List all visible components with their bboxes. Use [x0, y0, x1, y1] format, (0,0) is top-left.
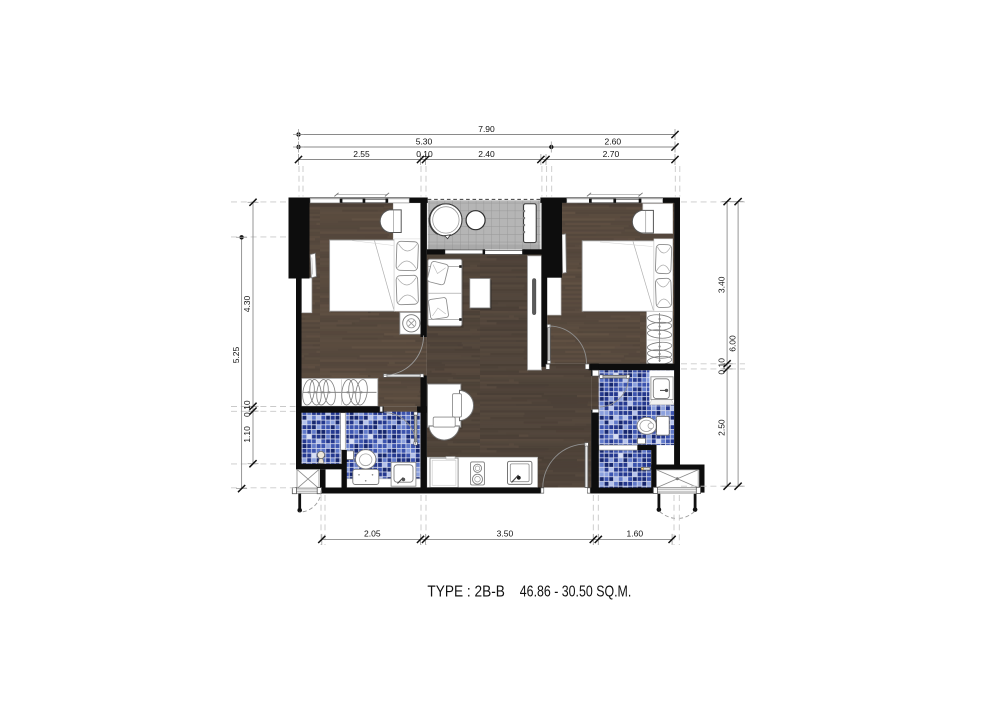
svg-text:0.10: 0.10 [416, 149, 433, 159]
svg-text:0.10: 0.10 [242, 400, 252, 417]
svg-text:1.10: 1.10 [242, 426, 252, 443]
svg-text:5.25: 5.25 [231, 346, 241, 363]
svg-text:2.55: 2.55 [353, 149, 370, 159]
svg-text:46.86 - 30.50 SQ.M.: 46.86 - 30.50 SQ.M. [520, 584, 632, 601]
svg-text:2.40: 2.40 [478, 149, 495, 159]
svg-text:3.40: 3.40 [716, 276, 726, 293]
svg-text:4.30: 4.30 [242, 295, 252, 312]
svg-text:TYPE : 2B-B: TYPE : 2B-B [427, 584, 505, 601]
svg-text:2.05: 2.05 [364, 529, 381, 539]
svg-text:2.50: 2.50 [716, 419, 726, 436]
svg-text:2.60: 2.60 [605, 136, 622, 146]
svg-text:3.50: 3.50 [497, 529, 514, 539]
svg-text:7.90: 7.90 [478, 124, 495, 134]
svg-text:2.70: 2.70 [603, 149, 620, 159]
svg-text:5.30: 5.30 [416, 136, 433, 146]
svg-text:0.10: 0.10 [716, 358, 726, 375]
svg-text:1.60: 1.60 [627, 529, 644, 539]
svg-text:6.00: 6.00 [727, 335, 737, 352]
